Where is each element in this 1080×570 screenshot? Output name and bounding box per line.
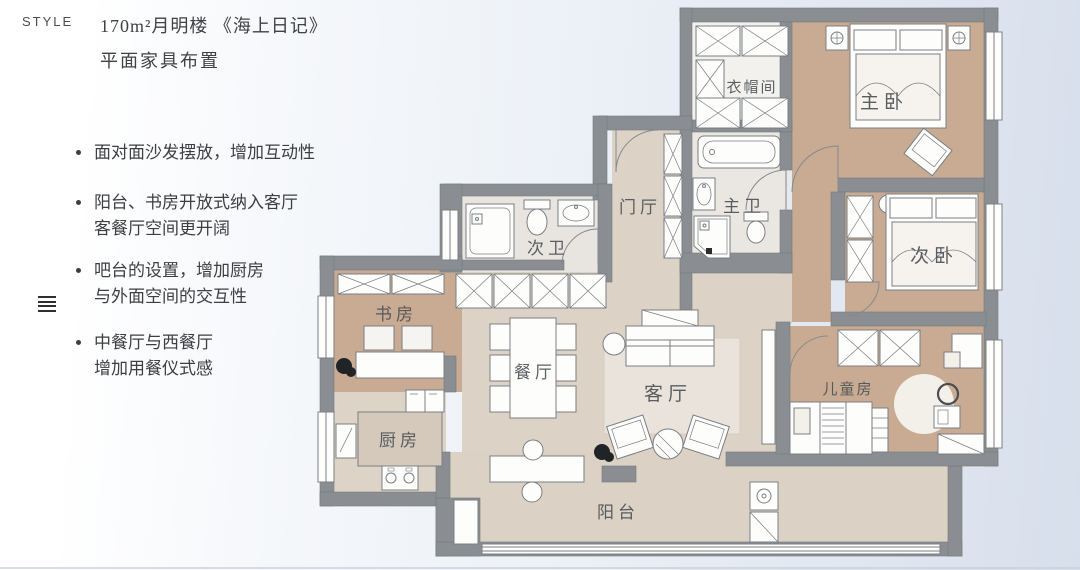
- bay-window-seat-icon: [938, 434, 984, 454]
- console-icon: [642, 310, 698, 326]
- kids-bed-icon: [790, 402, 888, 454]
- coffee-table-icon: [653, 429, 683, 459]
- sink-icon: [693, 178, 715, 210]
- room-label-dining: 餐厅: [514, 363, 556, 382]
- room-label-kitchen: 厨房: [379, 431, 421, 450]
- balcony-corner-cabinet-icon: [454, 500, 478, 544]
- side-table-icon: [603, 333, 625, 355]
- fridge-icon: [406, 390, 444, 412]
- shower-cabin-icon: [466, 204, 514, 258]
- washing-machine-icon: [750, 482, 778, 510]
- room-label-kids-room: 儿童房: [822, 380, 873, 398]
- tv-cabinet-icon: [762, 330, 775, 444]
- bottom-divider: [0, 567, 1080, 569]
- room-label-master-bedroom: 主卧: [860, 91, 908, 113]
- stove-icon: [382, 466, 418, 490]
- hall-cabinet-icon: [664, 134, 682, 258]
- balcony-cabinet-icon: [750, 512, 778, 542]
- room-label-balcony: 阳台: [597, 503, 639, 522]
- kitchen-sink-icon: [336, 424, 356, 458]
- room-label-study: 书房: [375, 305, 417, 324]
- room-label-living: 客厅: [644, 383, 692, 405]
- room-label-entry-hall: 门厅: [619, 198, 661, 217]
- room-label-cloakroom: 衣帽间: [726, 79, 777, 96]
- slide: STYLE 170m²月明楼 《海上日记》 平面家具布置 面对面沙发摆放，增加互…: [0, 0, 1080, 570]
- bed-icon: [886, 194, 978, 290]
- floor-drain-icon: [706, 248, 712, 254]
- play-table-icon: [934, 406, 960, 428]
- bathtub-icon: [698, 136, 780, 168]
- sink-icon: [558, 200, 594, 226]
- room-label-master-bath: 主卫: [723, 197, 765, 216]
- room-label-second-bath: 次卫: [527, 239, 569, 258]
- room-label-second-bedroom: 次卧: [910, 245, 958, 267]
- floorplan-svg: 衣帽间 主卧 门厅 主卫 次卫 次卧 书房 餐厅 客厅 儿童房 厨房 阳台: [0, 0, 1080, 570]
- sofa-icon: [626, 326, 714, 366]
